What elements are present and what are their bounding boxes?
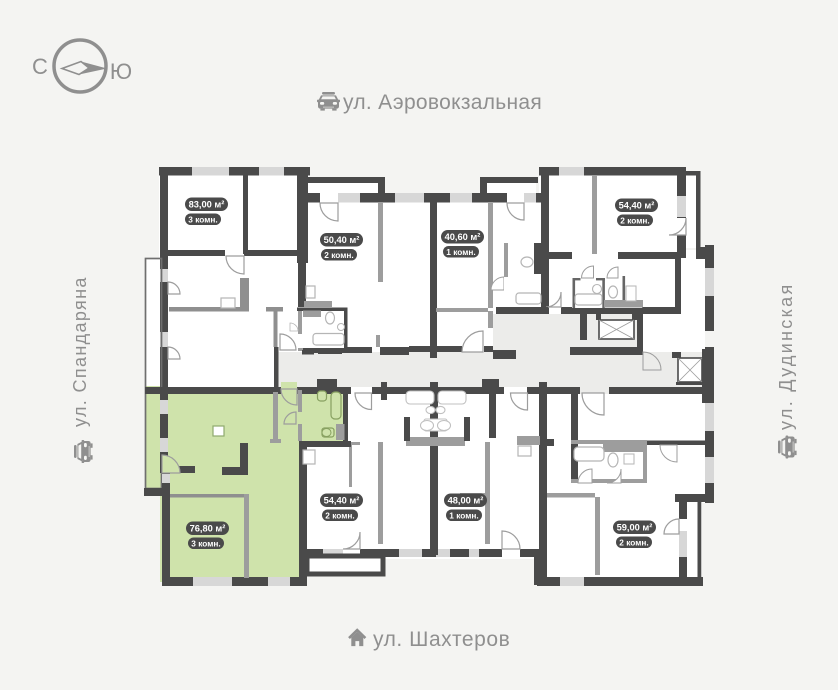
svg-text:2 комн.: 2 комн. — [324, 250, 353, 260]
svg-text:3 комн.: 3 комн. — [188, 214, 217, 224]
svg-text:48,00 м²: 48,00 м² — [448, 496, 484, 506]
svg-text:С: С — [32, 54, 48, 79]
svg-text:83,00 м²: 83,00 м² — [189, 200, 225, 210]
svg-text:54,40 м²: 54,40 м² — [324, 496, 360, 506]
svg-text:ул. Дудинская: ул. Дудинская — [776, 282, 796, 430]
svg-text:40,60 м²: 40,60 м² — [445, 232, 481, 242]
svg-text:3 комн.: 3 комн. — [191, 538, 220, 548]
svg-text:1 комн.: 1 комн. — [446, 247, 475, 257]
svg-text:54,40 м²: 54,40 м² — [619, 201, 655, 211]
svg-text:2 комн.: 2 комн. — [325, 510, 354, 520]
svg-text:ул. Аэровокзальная: ул. Аэровокзальная — [343, 91, 542, 114]
svg-text:1 комн.: 1 комн. — [449, 510, 478, 520]
svg-text:ул. Шахтеров: ул. Шахтеров — [373, 628, 510, 651]
svg-text:76,80 м²: 76,80 м² — [190, 524, 226, 534]
svg-text:Ю: Ю — [110, 59, 132, 84]
svg-text:50,40 м²: 50,40 м² — [324, 235, 360, 245]
svg-text:59,00 м²: 59,00 м² — [617, 523, 653, 533]
svg-text:2 комн.: 2 комн. — [619, 537, 648, 547]
svg-text:2 комн.: 2 комн. — [620, 215, 649, 225]
svg-text:ул. Спандаряна: ул. Спандаряна — [70, 276, 90, 427]
